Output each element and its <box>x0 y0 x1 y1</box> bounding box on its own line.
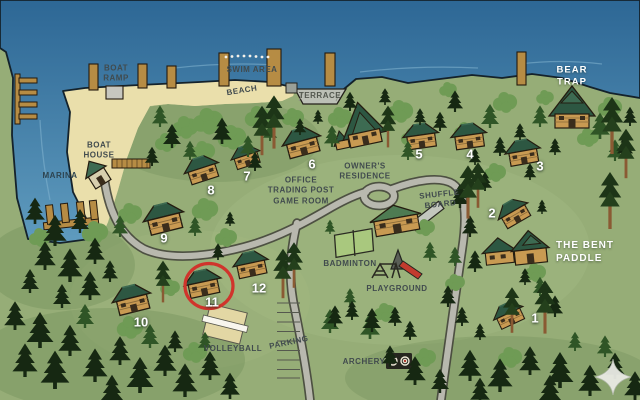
cabin-number-12[interactable]: 12 <box>252 281 266 296</box>
cabin-number-6[interactable]: 6 <box>308 157 315 172</box>
cabin-number-4[interactable]: 4 <box>466 147 473 162</box>
cabin-number-3[interactable]: 3 <box>536 159 543 174</box>
map-artwork <box>0 0 640 400</box>
resort-map: BOAT RAMP SWIM AREA BEACH TERRACE BOAT H… <box>0 0 640 400</box>
boat-ramp-pad <box>106 86 123 99</box>
cabin-number-1[interactable]: 1 <box>531 311 538 326</box>
boardwalk <box>112 159 150 168</box>
cabin-number-2[interactable]: 2 <box>488 206 495 221</box>
cabin-number-8[interactable]: 8 <box>207 183 214 198</box>
cabin-number-5[interactable]: 5 <box>415 147 422 162</box>
cabin-number-11[interactable]: 11 <box>205 295 219 310</box>
cabin-number-10[interactable]: 10 <box>134 315 148 330</box>
cabin-number-9[interactable]: 9 <box>160 231 167 246</box>
cabin-number-7[interactable]: 7 <box>243 169 250 184</box>
